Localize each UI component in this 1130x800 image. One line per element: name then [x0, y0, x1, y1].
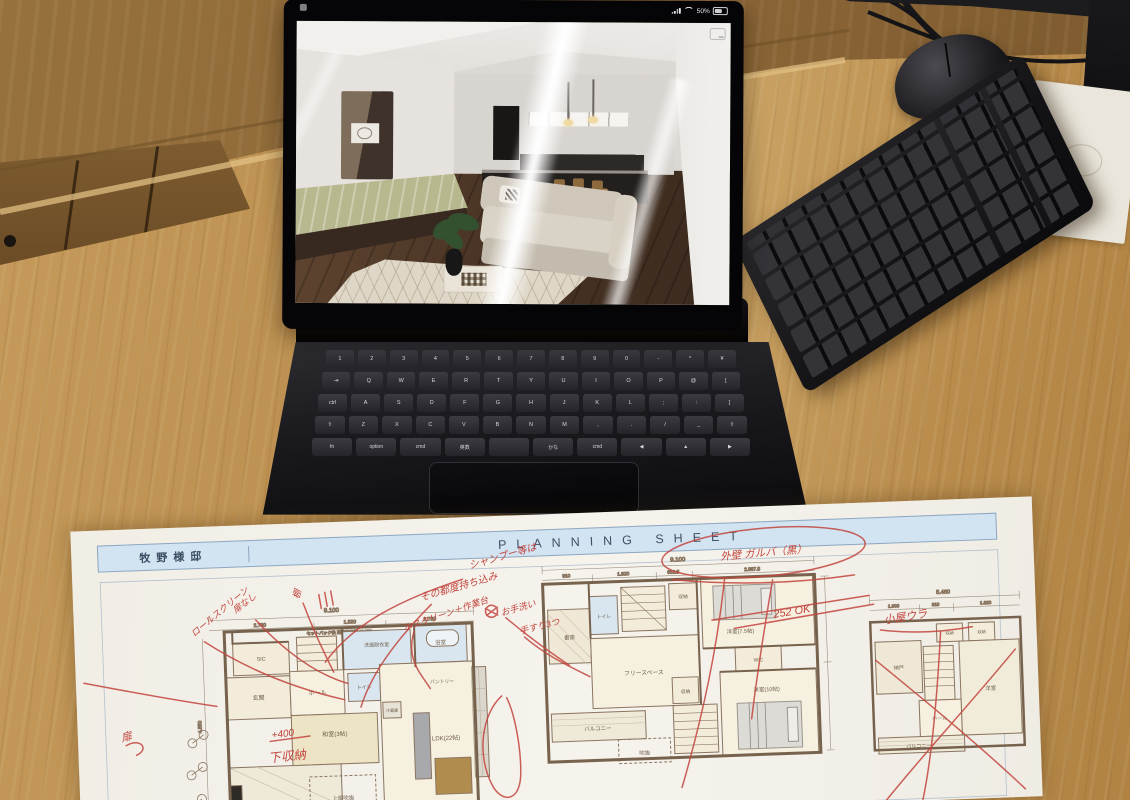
trackpad: [429, 462, 639, 514]
key-row-numbers: 1234567890-^¥: [326, 350, 736, 368]
dim-total-2f: 9.100: [670, 557, 686, 564]
key: D: [417, 394, 446, 412]
key: J: [550, 394, 579, 412]
room-label: フリースペース: [624, 669, 664, 677]
floor-plans: 9.100 2.730 1.820 2.730 セットバック後 道路境界線 10…: [70, 496, 1042, 800]
key: 6: [485, 350, 513, 368]
key: S: [384, 394, 413, 412]
dim-seg: 1.820: [617, 571, 630, 577]
desk-photo: 1234567890-^¥ ⇥QWERTYUIOP@[ ctrlASDFGHJK…: [0, 0, 1130, 800]
key: W: [387, 372, 415, 390]
key: U: [549, 372, 577, 390]
key: C: [416, 416, 446, 434]
key: B: [483, 416, 513, 434]
app-icon: [300, 4, 307, 11]
option-key: option: [356, 438, 396, 456]
sofa-pillow-pattern: [505, 189, 518, 201]
key: Z: [349, 416, 379, 434]
key: 0: [613, 350, 641, 368]
interior-render-image: [295, 21, 730, 305]
dim-seg: 1.820: [980, 600, 992, 605]
wall-hanging-card: [351, 123, 379, 143]
key: ]: [715, 394, 744, 412]
space-key: [489, 438, 529, 456]
key: L: [616, 394, 645, 412]
room-label: SIC: [256, 657, 265, 663]
key: 2: [358, 350, 386, 368]
magic-keyboard-base: 1234567890-^¥ ⇥QWERTYUIOP@[ ctrlASDFGHJK…: [260, 342, 808, 520]
key: M: [550, 416, 580, 434]
key: R: [452, 372, 480, 390]
dim-seg: 2.887.5: [744, 566, 761, 573]
key: O: [614, 372, 642, 390]
bed-symbol: [713, 584, 776, 620]
render-range-hood: [493, 106, 519, 160]
planning-sheet: 牧野様邸 PLANNING SHEET 9.100 2.730 1.820 2.…: [70, 496, 1042, 800]
key-row-bottom: ⇧ZXCVBNM,./_⇧: [315, 416, 747, 434]
pendant-light: [567, 82, 569, 120]
wifi-icon: [684, 7, 694, 15]
room-label: 冷蔵庫: [386, 707, 398, 713]
plant-vase: [445, 249, 462, 276]
mouse-button-seam: [944, 43, 951, 77]
render-kitchen-windows: [528, 112, 628, 127]
key-row-top: ⇥QWERTYUIOP@[: [322, 372, 740, 390]
dim-seg: 2.730: [423, 616, 436, 622]
dim-seg: 910: [562, 573, 571, 579]
room-label: 吹抜: [639, 749, 651, 757]
arrow-left-key: ◀: [621, 438, 661, 456]
key: .: [617, 416, 647, 434]
key: 5: [453, 350, 481, 368]
key: 8: [549, 350, 577, 368]
dim-seg: 1.900: [888, 603, 900, 608]
key: I: [582, 372, 610, 390]
arrow-right-key: ▶: [710, 438, 750, 456]
picture-in-picture-icon: [710, 28, 726, 40]
battery-percent: 50%: [697, 7, 710, 14]
key: /: [650, 416, 680, 434]
key: A: [351, 394, 380, 412]
key: 9: [581, 350, 609, 368]
key: ⇥: [322, 372, 350, 390]
fn-key: fn: [312, 438, 352, 456]
key: Y: [517, 372, 545, 390]
key: N: [516, 416, 546, 434]
key: T: [484, 372, 512, 390]
dim-seg: 910: [932, 602, 940, 607]
pendant-shade: [563, 119, 573, 126]
key: _: [684, 416, 714, 434]
key: Q: [354, 372, 382, 390]
ipad-screen: 50%: [282, 0, 744, 331]
key: @: [679, 372, 707, 390]
dim-total-attic: 5.460: [936, 589, 950, 596]
key: G: [483, 394, 512, 412]
room-label: バルコニー: [584, 725, 612, 733]
room-label: ホール: [932, 716, 947, 723]
floor-plan-1f: 9.100 2.730 1.820 2.730 セットバック後 道路境界線 10…: [177, 603, 491, 800]
key: :: [682, 394, 711, 412]
key: ,: [583, 416, 613, 434]
bed-symbol: [737, 701, 803, 749]
room-label: トイレ: [357, 685, 372, 692]
dim-seg: 2.730: [254, 623, 267, 629]
key: 1: [326, 350, 354, 368]
key: ¥: [708, 350, 736, 368]
render-wall-hanging: [341, 91, 393, 179]
battery-icon: [713, 7, 728, 15]
pendant-shade: [588, 116, 598, 123]
key: F: [450, 394, 479, 412]
key: H: [516, 394, 545, 412]
kana-key: かな: [533, 438, 573, 456]
app-toolbar-icons: [300, 4, 307, 11]
key: P: [647, 372, 675, 390]
key: 7: [517, 350, 545, 368]
command-key-right: cmd: [577, 438, 617, 456]
chess-board: [461, 273, 486, 286]
key: ^: [676, 350, 704, 368]
room-label: バルコニー: [906, 743, 931, 750]
room-label: 洗面脱衣室: [364, 641, 389, 649]
key: 3: [390, 350, 418, 368]
key: X: [382, 416, 412, 434]
floor-plan-attic: 5.460 1.900 910 1.820 納戸 収納 収納 洋室: [869, 587, 1025, 754]
key: -: [644, 350, 672, 368]
key: K: [583, 394, 612, 412]
key: 4: [422, 350, 450, 368]
key: ⇧: [717, 416, 747, 434]
eisu-key: 英数: [445, 438, 485, 456]
key: E: [419, 372, 447, 390]
dim-seg: 1.820: [343, 619, 356, 625]
magic-keyboard-keys: 1234567890-^¥ ⇥QWERTYUIOP@[ ctrlASDFGHJK…: [312, 350, 750, 456]
signal-icon: [671, 8, 680, 15]
key: ctrl: [318, 394, 347, 412]
arrow-up-down-key: ▲: [666, 438, 706, 456]
key: ⇧: [315, 416, 345, 434]
key: [: [712, 372, 740, 390]
command-key-left: cmd: [400, 438, 440, 456]
floor-plan-2f: 9.100 910 1.820 682.5 2.887.5: [542, 552, 835, 766]
key: ;: [649, 394, 678, 412]
room-label: WIC: [754, 657, 764, 663]
status-bar: 50%: [671, 7, 727, 15]
key-row-home: ctrlASDFGHJKL;:]: [318, 394, 744, 412]
room-label: トイレ: [597, 615, 612, 621]
key: V: [449, 416, 479, 434]
dim-seg: 682.5: [667, 569, 680, 575]
room-label: パントリー: [430, 679, 455, 686]
room-label: ホール: [308, 689, 326, 697]
dim-total-1f: 9.100: [324, 608, 340, 615]
pendant-light: [592, 79, 594, 117]
key-row-space: fn option cmd 英数 かな cmd ◀ ▲ ▶: [312, 438, 750, 456]
wall-hanging-wreath: [357, 127, 372, 139]
